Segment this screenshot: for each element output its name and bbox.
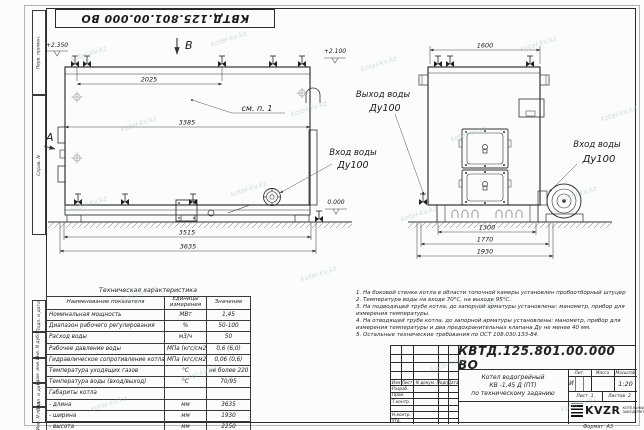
frame-box-podp-data-1: Подп. и дата — [32, 300, 46, 332]
lit-value: И — [568, 376, 575, 391]
sign-utv: Утв. — [392, 418, 413, 425]
doc-number: КВТД.125.801.00.000 ВО — [458, 346, 637, 369]
title-block: Изм Лист N докум. Подп. Дата Разраб. Про… — [390, 345, 636, 423]
table-row: Температура уходящих газов°Сне более 220 — [47, 365, 251, 376]
scale-header: Масштаб — [614, 369, 637, 376]
tech-table-header: Наименование показателя Единицы измерени… — [47, 297, 251, 310]
sheets-total: Листов2 — [602, 391, 637, 401]
logo-text: KVZR — [585, 404, 620, 417]
col-ndokum: N докум. — [413, 379, 438, 385]
tech-table-title: Техническая характеристика — [46, 287, 250, 294]
table-row: Номинальная мощностьМВт1,45 — [47, 310, 251, 321]
note-line: 3. На подводящей трубе котла, до запорно… — [356, 304, 636, 318]
sheet-number: Лист1 — [568, 391, 602, 401]
col-data: Дата — [448, 379, 458, 385]
note-line: 2. Температура воды на входе 70°С, на вы… — [356, 297, 636, 304]
logo-bars-icon — [571, 403, 583, 417]
table-row: Рабочее давление водыМПа (кгс/см2)0,6 (6… — [47, 343, 251, 354]
top-stamp-doc-number: КВТД.125.801.00.000 ВО — [55, 9, 275, 28]
table-row: Расход водым3/ч50 — [47, 332, 251, 343]
company-logo: KVZR КОТЕЛЬНЫЙ ЗАВОД РЭП — [571, 403, 644, 417]
format-label: Формат А3 — [556, 424, 640, 430]
frame-box-sprav-n: Справ. N — [32, 95, 46, 235]
lit-header: Лит. — [568, 369, 591, 376]
technical-notes: 1. На боковой стенке котла в области топ… — [356, 290, 636, 339]
tech-table: Наименование показателя Единицы измерени… — [46, 296, 250, 430]
table-row: Температура воды (вход/выход)°С70/95 — [47, 377, 251, 388]
table-row: Гидравлическое сопротивление котлаМПа (к… — [47, 354, 251, 365]
frame-box-inv-podl: Инв. N подл. — [32, 407, 46, 423]
mass-header: Масса — [591, 369, 614, 376]
note-line: 5. Остальные технические требования по О… — [356, 332, 636, 339]
table-row: Диапазон рабочего регулирования%50-100 — [47, 321, 251, 332]
note-line: 4. На отводящей трубе котла, до запорной… — [356, 318, 636, 332]
frame-box-perv-primen: Перв. примен. — [32, 10, 46, 95]
table-row: Габариты котла — [47, 388, 251, 399]
col-podp: Подп. — [438, 379, 448, 385]
drawing-sheet: 2025 3385 3515 3635 1600 1300 1770 1930 … — [0, 0, 644, 430]
table-row: - длинамм3635 — [47, 399, 251, 410]
table-row: - высотамм2250 — [47, 421, 251, 430]
logo-subtitle: КОТЕЛЬНЫЙ ЗАВОД РЭП — [622, 406, 644, 414]
scale-value: 1:20 — [614, 376, 637, 391]
frame-box-inv-dubl: Инв. N дубл. — [32, 332, 46, 358]
product-name: Котел водогрейный КВ -1,45 Д (ПТ) по тех… — [458, 371, 568, 401]
table-row: - ширинамм1930 — [47, 410, 251, 421]
note-line: 1. На боковой стенке котла в области топ… — [356, 290, 636, 297]
